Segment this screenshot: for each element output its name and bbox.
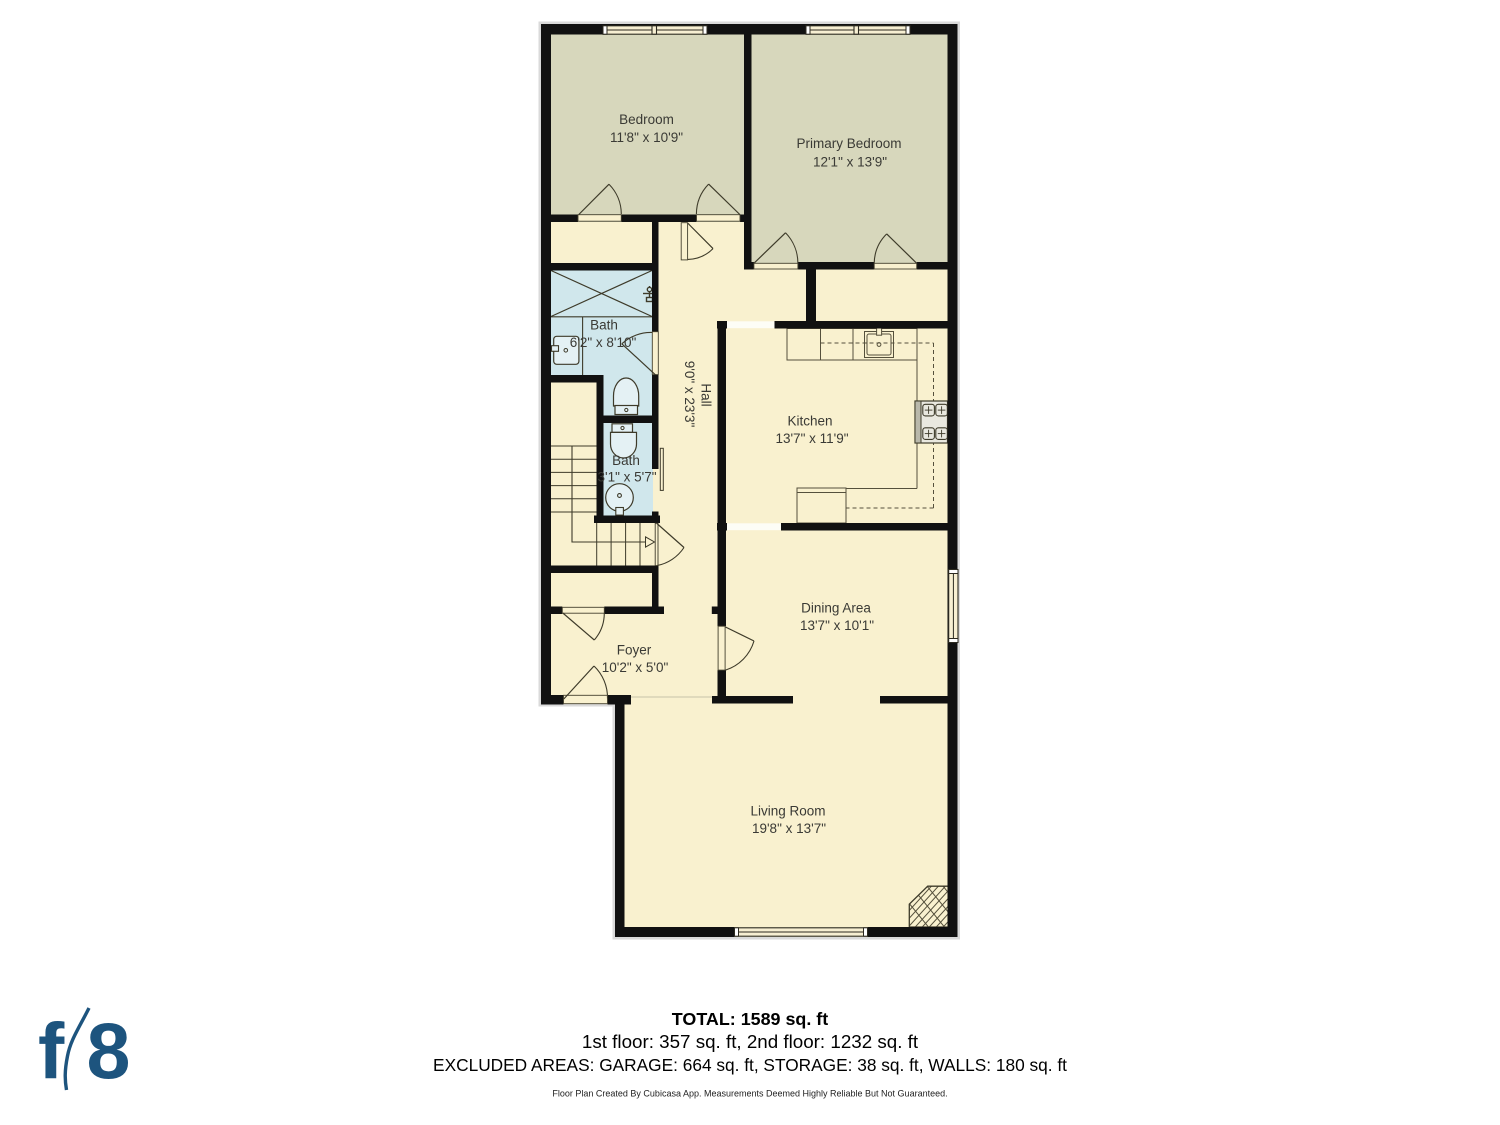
svg-text:9'0" x 23'3": 9'0" x 23'3" <box>682 361 697 428</box>
svg-text:6'2" x 8'10": 6'2" x 8'10" <box>570 335 637 350</box>
svg-text:10'2" x 5'0": 10'2" x 5'0" <box>602 660 669 675</box>
svg-text:TOTAL: 1589 sq. ft: TOTAL: 1589 sq. ft <box>672 1009 828 1029</box>
svg-text:19'8" x 13'7": 19'8" x 13'7" <box>752 821 826 836</box>
svg-text:EXCLUDED AREAS: GARAGE: 664 sq: EXCLUDED AREAS: GARAGE: 664 sq. ft, STOR… <box>433 1055 1067 1075</box>
svg-text:f: f <box>38 1006 65 1095</box>
svg-text:1st floor: 357 sq. ft, 2nd flo: 1st floor: 357 sq. ft, 2nd floor: 1232 s… <box>582 1031 919 1052</box>
svg-text:Living Room: Living Room <box>750 804 825 819</box>
svg-text:13'7" x 11'9": 13'7" x 11'9" <box>775 431 848 446</box>
svg-text:Bedroom: Bedroom <box>619 112 674 127</box>
svg-text:Floor Plan Created By Cubicasa: Floor Plan Created By Cubicasa App. Meas… <box>552 1089 947 1099</box>
svg-text:12'1" x 13'9": 12'1" x 13'9" <box>813 155 887 170</box>
svg-text:Kitchen: Kitchen <box>787 414 832 429</box>
svg-text:Bath: Bath <box>590 318 618 333</box>
svg-text:Dining Area: Dining Area <box>801 601 871 616</box>
svg-text:Bath: Bath <box>612 453 640 468</box>
svg-text:8: 8 <box>87 1006 131 1095</box>
svg-text:11'8" x 10'9": 11'8" x 10'9" <box>610 130 683 145</box>
svg-text:13'7" x 10'1": 13'7" x 10'1" <box>800 618 874 633</box>
svg-text:3'1" x 5'7": 3'1" x 5'7" <box>597 470 656 485</box>
svg-text:Hall: Hall <box>699 383 714 406</box>
svg-text:Primary Bedroom: Primary Bedroom <box>796 136 901 151</box>
svg-text:Foyer: Foyer <box>617 643 652 658</box>
